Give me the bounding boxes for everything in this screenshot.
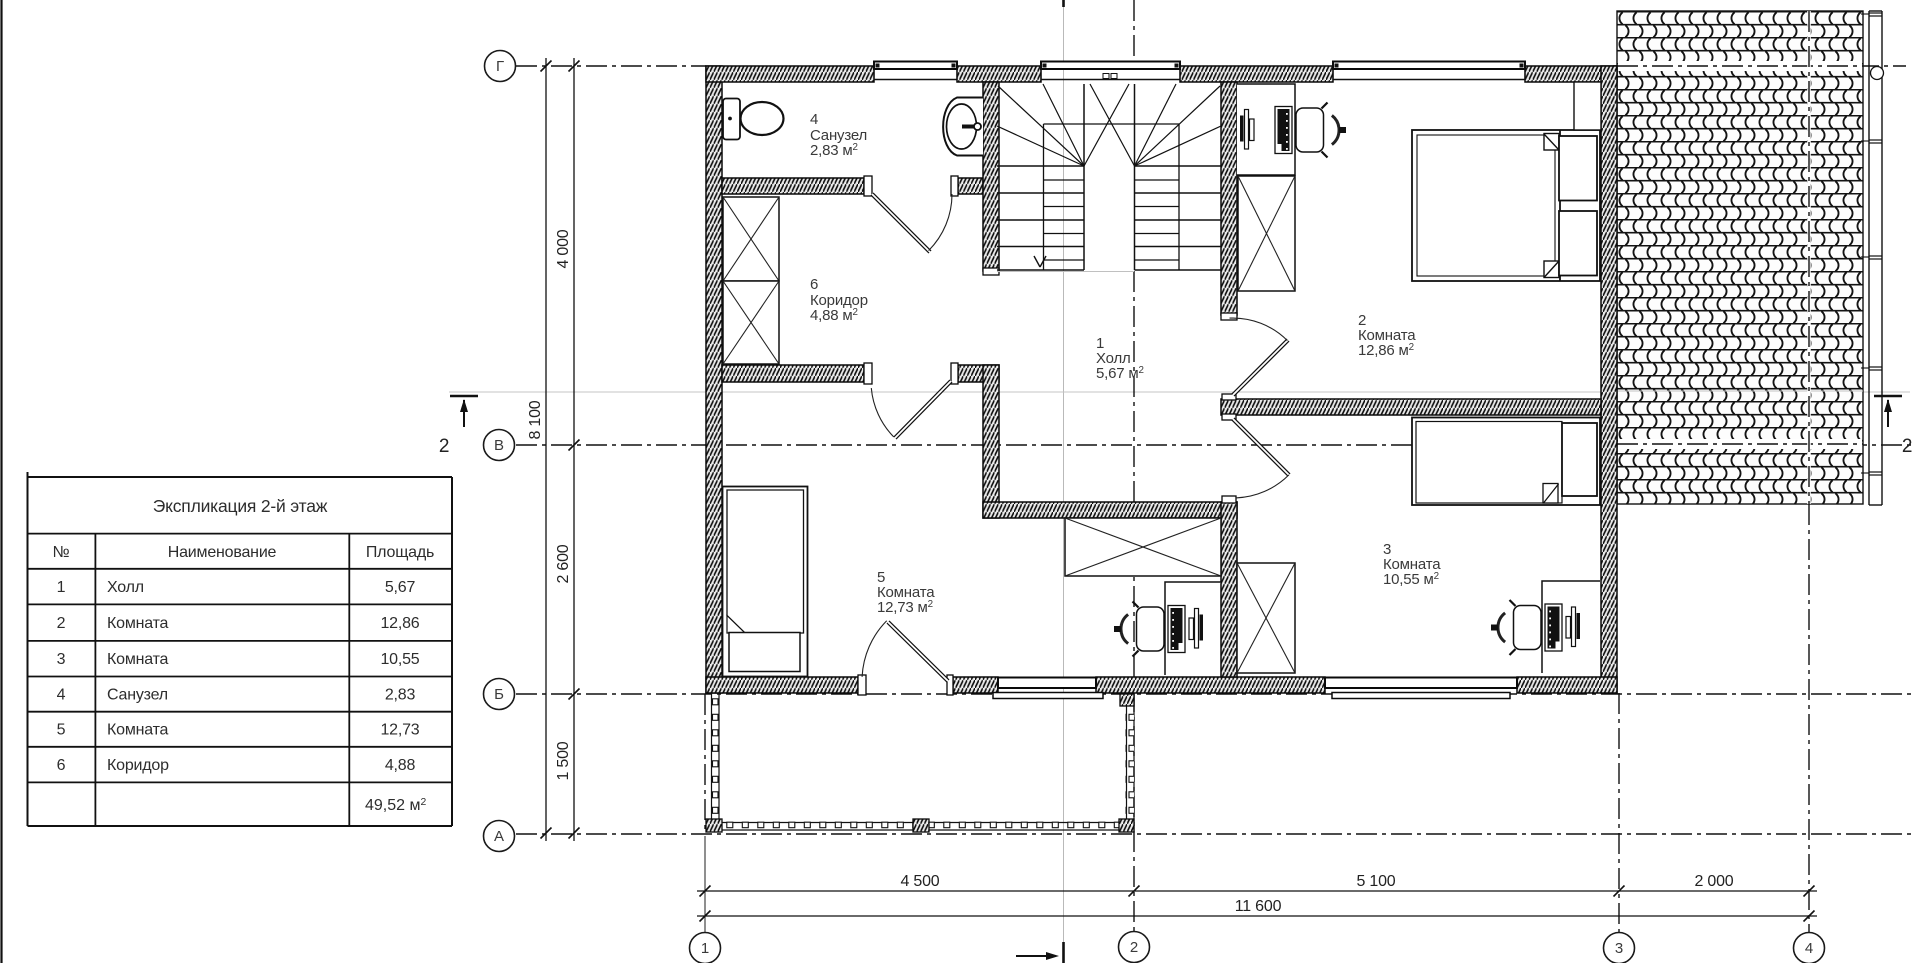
svg-text:2 600: 2 600: [555, 544, 572, 583]
svg-text:10,55: 10,55: [380, 651, 419, 668]
svg-text:4: 4: [810, 111, 818, 128]
svg-text:4 500: 4 500: [900, 873, 939, 890]
svg-text:11 600: 11 600: [1235, 898, 1282, 915]
svg-text:1: 1: [701, 940, 709, 957]
svg-text:1 500: 1 500: [555, 741, 572, 780]
svg-text:В: В: [494, 437, 504, 454]
svg-text:Б: Б: [494, 686, 504, 703]
svg-text:А: А: [494, 828, 504, 845]
svg-text:5 100: 5 100: [1356, 873, 1395, 890]
svg-text:Коридор: Коридор: [107, 757, 169, 774]
svg-text:49,52 м2: 49,52 м2: [365, 797, 426, 814]
svg-text:5,67: 5,67: [385, 579, 416, 596]
svg-text:10,55 м2: 10,55 м2: [1383, 571, 1439, 588]
svg-text:Санузел: Санузел: [107, 687, 168, 704]
svg-text:4 000: 4 000: [555, 229, 572, 268]
svg-text:1: 1: [57, 579, 66, 596]
svg-text:5,67 м2: 5,67 м2: [1096, 365, 1144, 382]
svg-text:12,86: 12,86: [380, 615, 419, 632]
svg-text:4: 4: [1805, 940, 1813, 957]
svg-text:2 000: 2 000: [1694, 873, 1733, 890]
svg-text:12,73: 12,73: [380, 722, 419, 739]
svg-text:4: 4: [57, 687, 66, 704]
svg-text:№: №: [53, 544, 70, 561]
svg-text:5: 5: [57, 722, 66, 739]
svg-text:2,83: 2,83: [385, 687, 416, 704]
svg-text:4,88: 4,88: [385, 757, 416, 774]
svg-text:12,73 м2: 12,73 м2: [877, 599, 933, 616]
svg-text:Г: Г: [496, 58, 504, 75]
svg-text:2,83 м2: 2,83 м2: [810, 142, 858, 159]
svg-text:Экспликация 2-й этаж: Экспликация 2-й этаж: [153, 496, 328, 516]
svg-text:6: 6: [810, 276, 818, 293]
svg-text:Площадь: Площадь: [366, 544, 434, 561]
svg-text:6: 6: [57, 757, 66, 774]
svg-text:Комната: Комната: [107, 615, 169, 632]
svg-text:2: 2: [439, 436, 449, 457]
svg-text:8 100: 8 100: [527, 400, 544, 439]
svg-text:2: 2: [1130, 939, 1138, 956]
svg-text:3: 3: [1615, 940, 1623, 957]
svg-text:12,86 м2: 12,86 м2: [1358, 342, 1414, 359]
svg-text:2: 2: [57, 615, 66, 632]
svg-text:Комната: Комната: [107, 722, 169, 739]
svg-text:Холл: Холл: [107, 579, 144, 596]
svg-text:3: 3: [57, 651, 66, 668]
svg-text:2: 2: [1902, 436, 1912, 457]
svg-text:Наименование: Наименование: [168, 544, 277, 561]
svg-text:4,88 м2: 4,88 м2: [810, 307, 858, 324]
svg-text:Комната: Комната: [107, 651, 169, 668]
